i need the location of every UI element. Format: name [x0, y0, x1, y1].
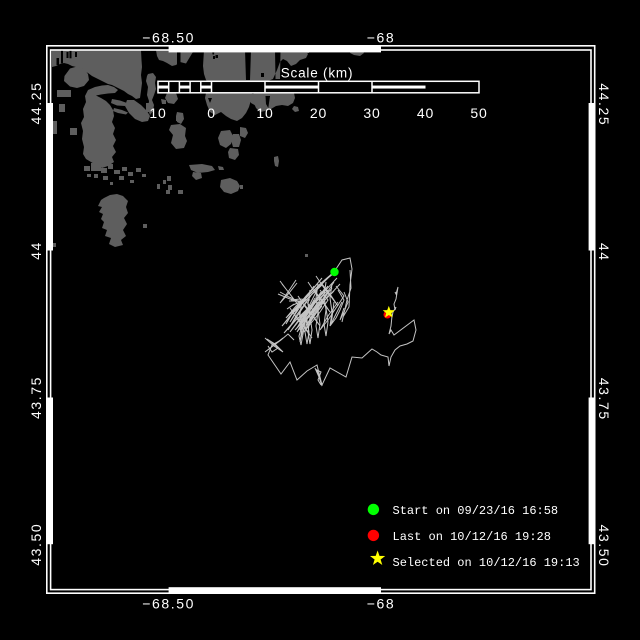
- svg-text:44: 44: [28, 241, 44, 260]
- svg-text:−68.50: −68.50: [142, 29, 195, 45]
- svg-text:44: 44: [596, 243, 612, 262]
- svg-text:30: 30: [363, 105, 380, 121]
- svg-text:44.25: 44.25: [28, 81, 44, 124]
- svg-text:10: 10: [149, 105, 166, 121]
- svg-text:50: 50: [470, 105, 487, 121]
- svg-text:0: 0: [207, 105, 216, 121]
- svg-text:43.75: 43.75: [28, 376, 44, 419]
- svg-text:10: 10: [256, 105, 273, 121]
- svg-text:−68: −68: [367, 596, 396, 612]
- svg-text:−68: −68: [367, 29, 396, 45]
- svg-text:Last on 10/12/16 19:28: Last on 10/12/16 19:28: [393, 530, 551, 544]
- svg-text:Start on 09/23/16 16:58: Start on 09/23/16 16:58: [393, 504, 559, 518]
- svg-text:Scale (km): Scale (km): [281, 66, 354, 81]
- svg-text:43.50: 43.50: [28, 523, 44, 566]
- svg-text:43.50: 43.50: [596, 524, 612, 567]
- svg-text:Selected on 10/12/16 19:13: Selected on 10/12/16 19:13: [393, 556, 580, 570]
- svg-text:43.75: 43.75: [596, 378, 612, 421]
- svg-text:40: 40: [417, 105, 434, 121]
- svg-text:44.25: 44.25: [596, 83, 612, 126]
- svg-text:20: 20: [310, 105, 327, 121]
- svg-text:−68.50: −68.50: [142, 596, 195, 612]
